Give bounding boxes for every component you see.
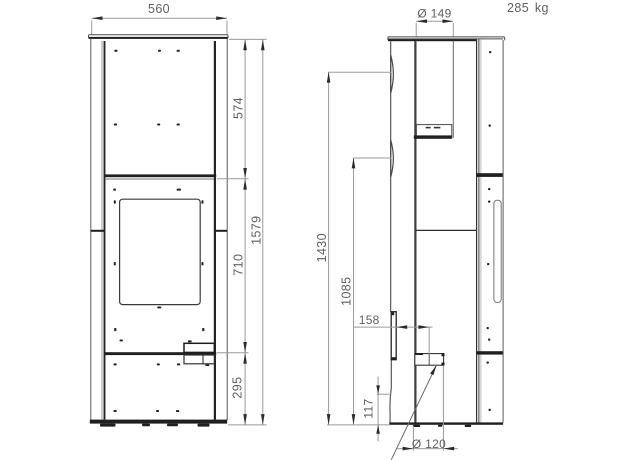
svg-text:285 kg: 285 kg — [507, 1, 549, 15]
svg-text:560: 560 — [148, 2, 170, 16]
svg-text:Ø 120: Ø 120 — [412, 437, 446, 451]
svg-text:Ø 149: Ø 149 — [417, 7, 451, 21]
svg-text:1430: 1430 — [315, 233, 329, 262]
svg-text:158: 158 — [359, 313, 380, 327]
svg-text:574: 574 — [232, 97, 246, 119]
svg-text:117: 117 — [361, 399, 375, 419]
svg-text:1579: 1579 — [250, 215, 264, 244]
svg-text:1085: 1085 — [340, 276, 354, 305]
svg-text:295: 295 — [231, 377, 245, 399]
svg-text:710: 710 — [231, 254, 245, 276]
